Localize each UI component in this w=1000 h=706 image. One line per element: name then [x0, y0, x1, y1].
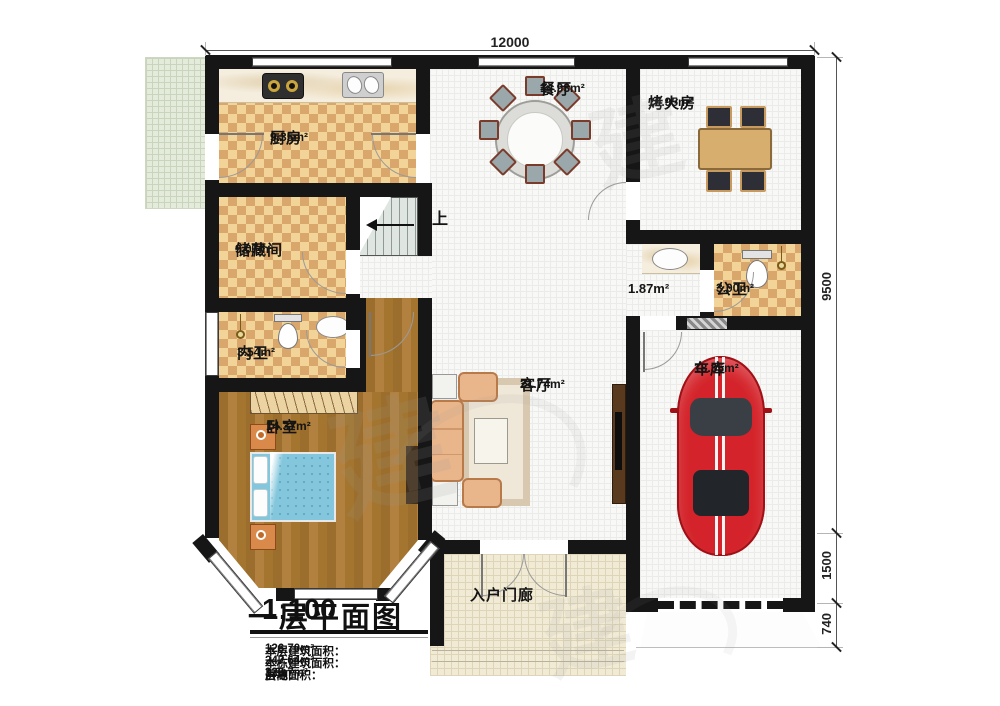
info-value: 247.64m² — [265, 655, 314, 667]
window — [205, 312, 219, 376]
car-rear-window-icon — [693, 470, 749, 516]
car-mirror-icon — [763, 408, 772, 413]
title-underline-thin — [250, 637, 428, 638]
room-name: 入户门廊 — [470, 588, 534, 604]
plan-scale: 1:100 — [262, 594, 336, 627]
wall — [205, 376, 219, 538]
dimension-right-small-value: 740 — [819, 613, 834, 635]
side-table-icon — [432, 480, 458, 506]
door-opening — [346, 250, 360, 294]
wall — [783, 598, 801, 612]
hall-sink-icon — [652, 248, 688, 270]
wall — [801, 69, 815, 612]
stairs-arrow — [376, 224, 414, 226]
bedroom-tv-cabinet-icon — [406, 446, 418, 504]
dining-chair-icon — [525, 164, 545, 184]
wall — [205, 180, 219, 312]
porch-steps — [430, 640, 626, 676]
fire-room-table-icon — [698, 128, 772, 170]
wall — [205, 378, 366, 392]
kitchen-counter — [219, 69, 416, 103]
wall — [205, 183, 432, 197]
room-area: 9.07m² — [235, 243, 273, 256]
tv-icon — [615, 412, 622, 470]
toilet-bowl-icon — [278, 323, 298, 349]
door-leaf — [643, 332, 645, 372]
blanket-fold-icon — [270, 452, 304, 522]
stove-burner-icon — [268, 80, 280, 92]
dining-chair-icon — [571, 120, 591, 140]
door-opening — [700, 270, 714, 312]
dimension-line-top — [205, 50, 815, 51]
room-area: 3.00m² — [716, 282, 754, 295]
sofa-icon — [430, 400, 464, 482]
car-stripe-icon — [722, 357, 725, 555]
wardrobe-icon — [250, 390, 358, 414]
fire-room-chair-icon — [740, 170, 766, 192]
pillow-icon — [253, 456, 268, 484]
side-table-icon — [432, 374, 457, 399]
title-underline-thick — [250, 630, 428, 634]
bedroom-bay-floor — [219, 540, 418, 588]
garage-ramp-line — [636, 647, 826, 648]
wall — [626, 330, 640, 612]
wall — [205, 298, 366, 312]
car-mirror-icon — [670, 408, 679, 413]
floor-plan-canvas: 上 — [0, 0, 1000, 706]
room-area: 9.35m² — [270, 131, 308, 144]
fire-room-chair-icon — [740, 106, 766, 128]
nightstand-lamp-icon — [256, 430, 266, 440]
room-area: 21.74m² — [520, 378, 565, 391]
info-value: 3.6m — [265, 667, 291, 679]
garage-door-dashed — [658, 601, 783, 609]
porch-step-line — [432, 650, 624, 651]
armchair-icon — [462, 478, 502, 508]
room-area: 1.87m² — [628, 282, 669, 296]
door-leaf — [219, 133, 264, 135]
wall — [626, 69, 640, 182]
pillow-icon — [253, 489, 268, 517]
info-value: 126.70m² — [265, 643, 314, 655]
dimension-right-mid-value: 1500 — [819, 551, 834, 580]
patio-area — [145, 57, 207, 209]
armchair-icon — [458, 372, 498, 402]
porch-step-line — [432, 661, 624, 662]
dimension-right-main-value: 9500 — [819, 272, 834, 301]
corridor-floor — [356, 256, 432, 298]
wall — [416, 69, 430, 134]
wall — [640, 598, 658, 612]
stairs-up-text: 上 — [432, 212, 449, 229]
room-area: 14.37m² — [266, 420, 311, 433]
wall — [430, 554, 444, 646]
room-area: 14.93m² — [540, 82, 585, 95]
door-opening — [626, 182, 640, 220]
dining-chair-icon — [479, 120, 499, 140]
door-opening — [416, 134, 430, 180]
wall — [346, 197, 360, 250]
fire-room-chair-icon — [706, 106, 732, 128]
window — [478, 57, 575, 67]
room-area: 10.95m² — [648, 96, 693, 109]
wall — [626, 230, 815, 244]
wall — [346, 312, 360, 330]
pull-cord-knob-icon — [236, 330, 245, 339]
nightstand-lamp-icon — [256, 530, 266, 540]
car-windshield-icon — [690, 398, 752, 436]
pull-cord-knob-icon — [777, 261, 786, 270]
stove-burner-icon — [286, 80, 298, 92]
wall — [418, 298, 432, 540]
door-leaf — [371, 133, 416, 135]
wall — [626, 316, 640, 330]
door-opening — [346, 330, 360, 368]
room-area: 18.35m² — [694, 362, 739, 375]
pull-cord-icon — [781, 246, 782, 262]
coffee-table-icon — [474, 418, 508, 464]
door-leaf — [369, 312, 371, 357]
toilet-icon — [742, 250, 772, 259]
room-area: 3.54m² — [237, 346, 275, 359]
window — [688, 57, 788, 67]
car-icon — [677, 356, 765, 556]
window — [252, 57, 392, 67]
dimension-line-right — [836, 57, 837, 648]
door-opening — [205, 134, 219, 180]
wall — [626, 220, 640, 230]
fire-room-chair-icon — [706, 170, 732, 192]
dimension-top-value: 12000 — [455, 34, 565, 50]
stairs-arrowhead — [366, 219, 377, 231]
wall — [205, 69, 219, 134]
duct-hatch — [687, 318, 727, 329]
door-leaf — [565, 554, 567, 597]
toilet-icon — [274, 314, 302, 322]
car-stripe-icon — [715, 357, 718, 555]
wall — [700, 244, 714, 270]
wall — [568, 540, 626, 554]
garage-ramp — [640, 612, 822, 648]
wall — [418, 197, 432, 256]
